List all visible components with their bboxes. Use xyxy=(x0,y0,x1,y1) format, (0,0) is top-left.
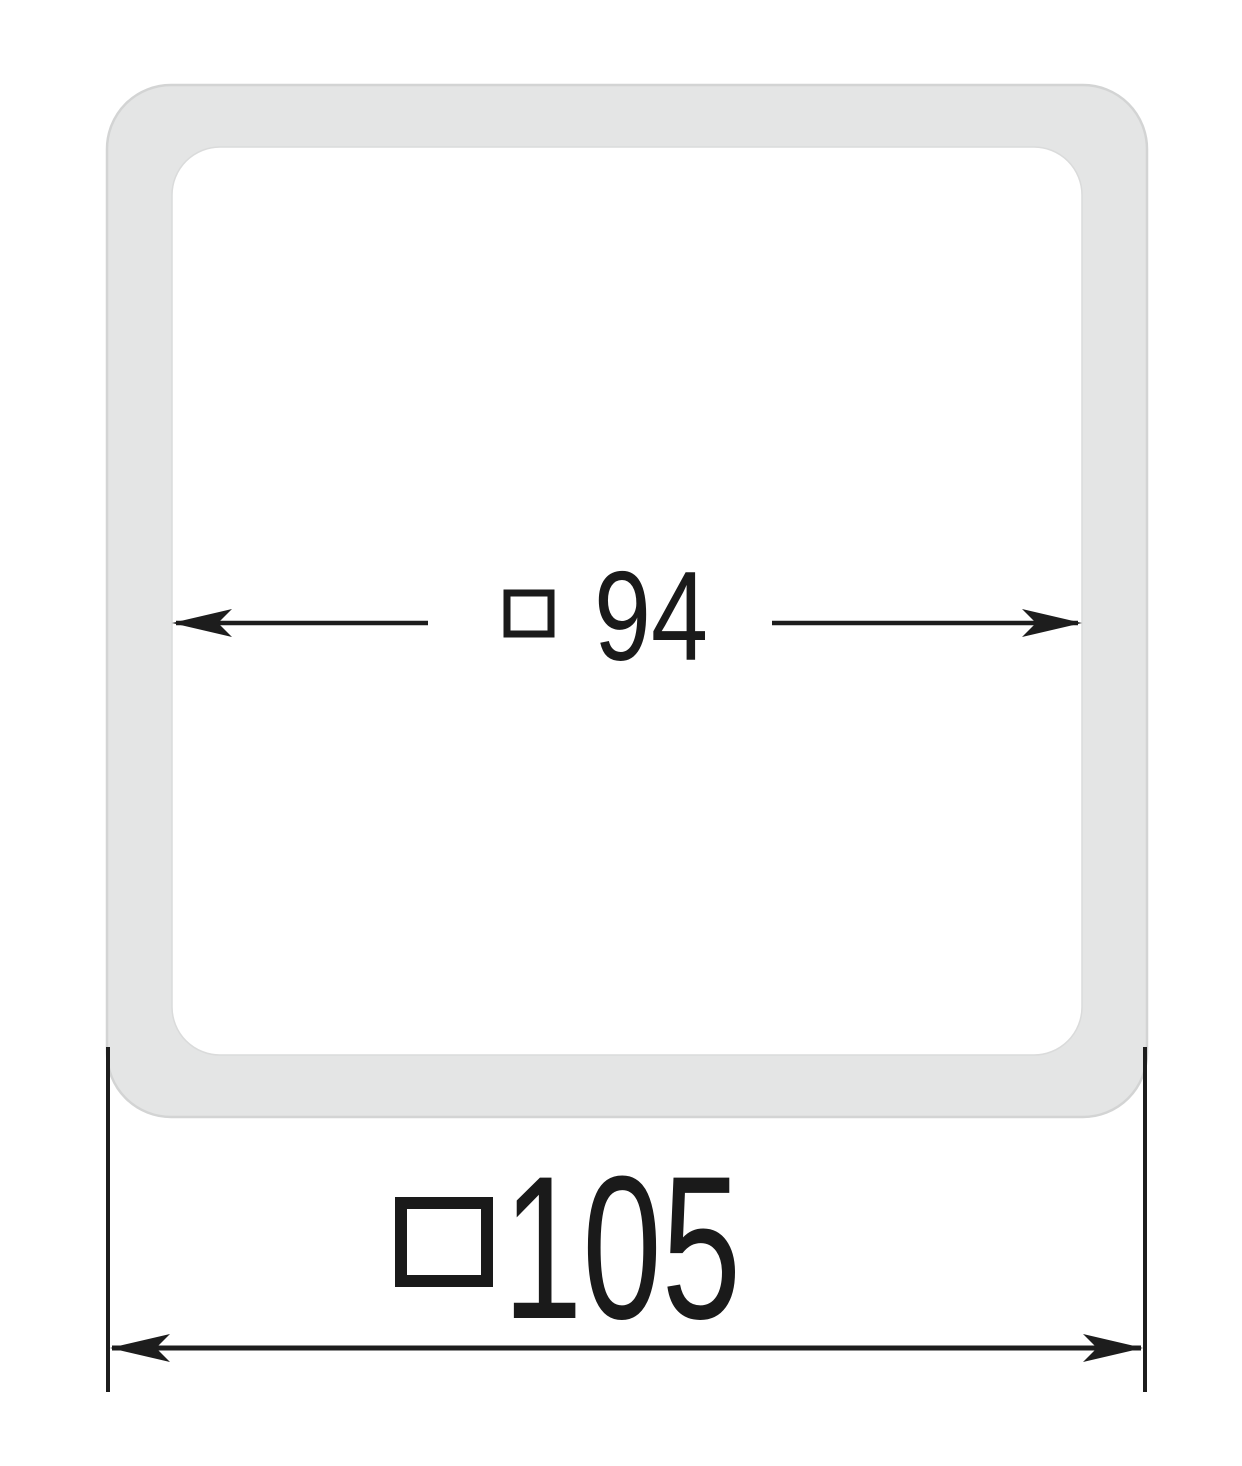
dimension-drawing: 94 105 xyxy=(0,0,1242,1466)
drawing-canvas: 94 105 xyxy=(0,0,1242,1466)
outer-dimension-value: 105 xyxy=(503,1134,741,1362)
inner-dimension-value: 94 xyxy=(594,545,708,687)
